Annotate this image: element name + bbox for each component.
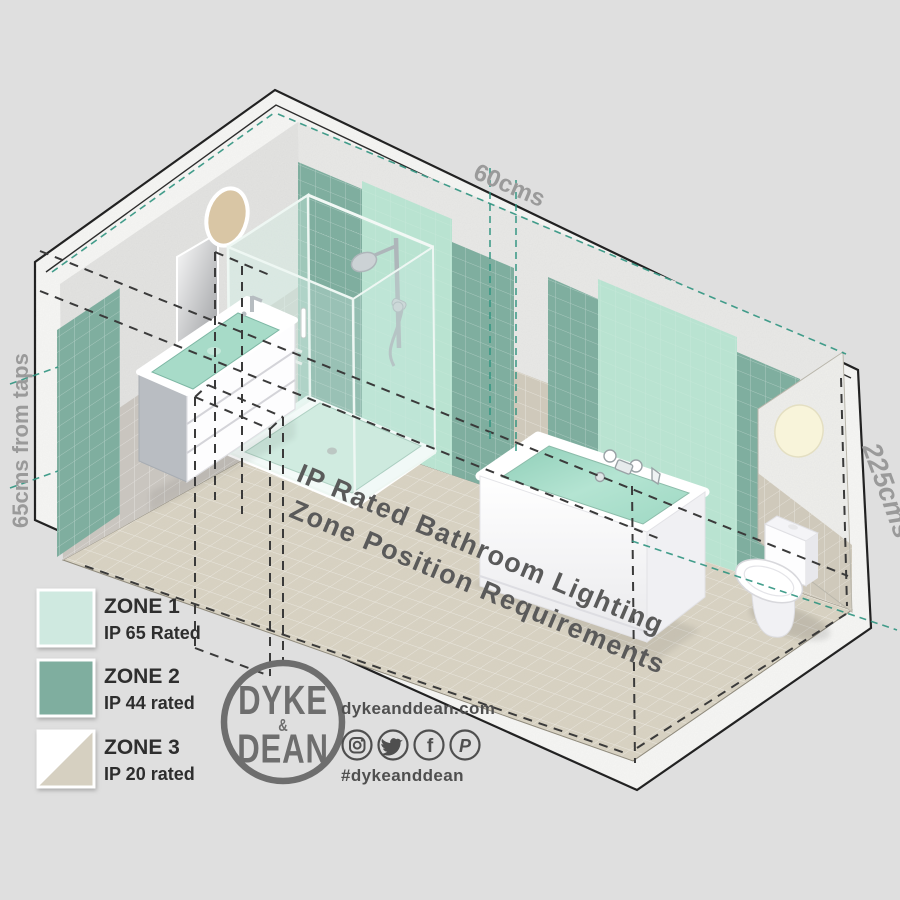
infographic-canvas: 60cms 225cms 65cms from taps IP Rated Ba…	[0, 0, 900, 900]
bathroom-zone-diagram: 60cms 225cms 65cms from taps IP Rated Ba…	[0, 0, 900, 900]
svg-text:f: f	[427, 736, 434, 757]
zone1-rating: IP 65 Rated	[104, 623, 201, 643]
website-text: dykeanddean.com	[341, 699, 495, 718]
social-icons: f P	[343, 731, 480, 760]
twitter-icon	[379, 731, 408, 760]
zone3-label: ZONE 3	[104, 736, 180, 759]
hashtag-text: #dykeanddean	[341, 766, 464, 785]
zone2-label: ZONE 2	[104, 665, 180, 688]
legend: ZONE 1 IP 65 Rated ZONE 2 IP 44 rated ZO…	[38, 590, 201, 787]
facebook-icon: f	[415, 731, 444, 760]
dimension-left: 65cms from taps	[8, 353, 33, 528]
legend-item-zone3: ZONE 3 IP 20 rated	[38, 731, 195, 787]
shower-door-handle	[301, 308, 306, 338]
svg-text:P: P	[459, 736, 472, 756]
logo-dean: DEAN	[237, 725, 329, 771]
zone2-swatch	[38, 660, 94, 716]
pinterest-icon: P	[451, 731, 480, 760]
zone3-rating: IP 20 rated	[104, 764, 195, 784]
zone1-label: ZONE 1	[104, 595, 180, 618]
zone2-rating: IP 44 rated	[104, 693, 195, 713]
logo-text: DYKE & DEAN	[237, 677, 329, 772]
legend-item-zone2: ZONE 2 IP 44 rated	[38, 660, 195, 716]
instagram-icon	[343, 731, 372, 760]
zone1-swatch	[38, 590, 94, 646]
legend-item-zone1: ZONE 1 IP 65 Rated	[38, 590, 201, 646]
